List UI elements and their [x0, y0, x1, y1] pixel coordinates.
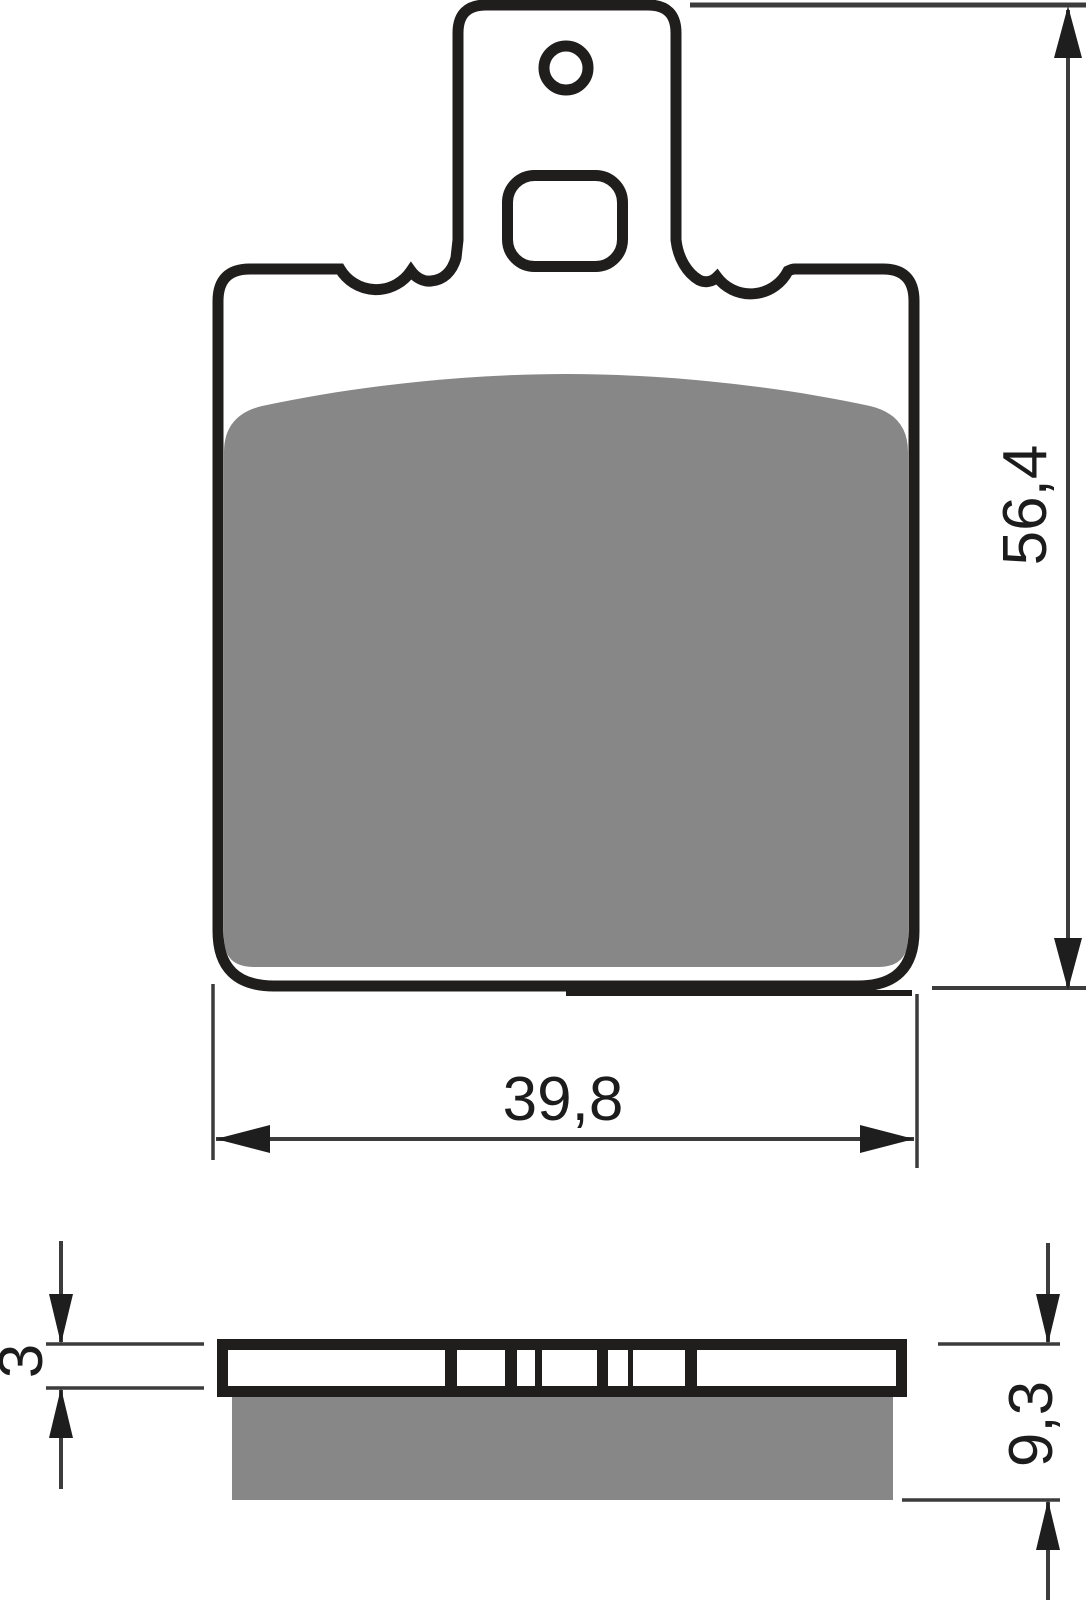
brake-pad-technical-drawing: 39,8 56,4 3 9,3 — [0, 0, 1092, 1600]
backing-plate-side-inner — [228, 1350, 896, 1386]
plate-slot-divider — [685, 1350, 697, 1386]
friction-pad-front-face — [224, 374, 908, 967]
arrowhead-left-39 — [216, 1125, 270, 1153]
arrowhead-up-56 — [1054, 6, 1082, 58]
dimension-label-height: 56,4 — [991, 405, 1061, 605]
arrowhead-down-93 — [1036, 1294, 1060, 1344]
bottom-edge-step — [566, 990, 912, 996]
round-mounting-hole — [544, 46, 588, 90]
plate-slot-divider — [535, 1350, 542, 1386]
arrowhead-right-39 — [860, 1125, 914, 1153]
dimension-label-total-thickness: 9,3 — [997, 1344, 1067, 1504]
arrowhead-down-56 — [1054, 938, 1082, 990]
friction-pad-side — [232, 1397, 893, 1500]
plate-slot-divider — [628, 1350, 633, 1386]
dimension-label-plate-thickness: 3 — [0, 1321, 57, 1401]
plate-slot-divider — [445, 1350, 457, 1386]
rounded-square-hole — [508, 176, 623, 267]
plate-slot-divider — [505, 1350, 517, 1386]
drawing-layer — [0, 0, 1092, 1600]
dimension-label-width: 39,8 — [463, 1065, 663, 1135]
arrowhead-up-93 — [1036, 1500, 1060, 1550]
plate-slot-divider — [597, 1350, 608, 1386]
